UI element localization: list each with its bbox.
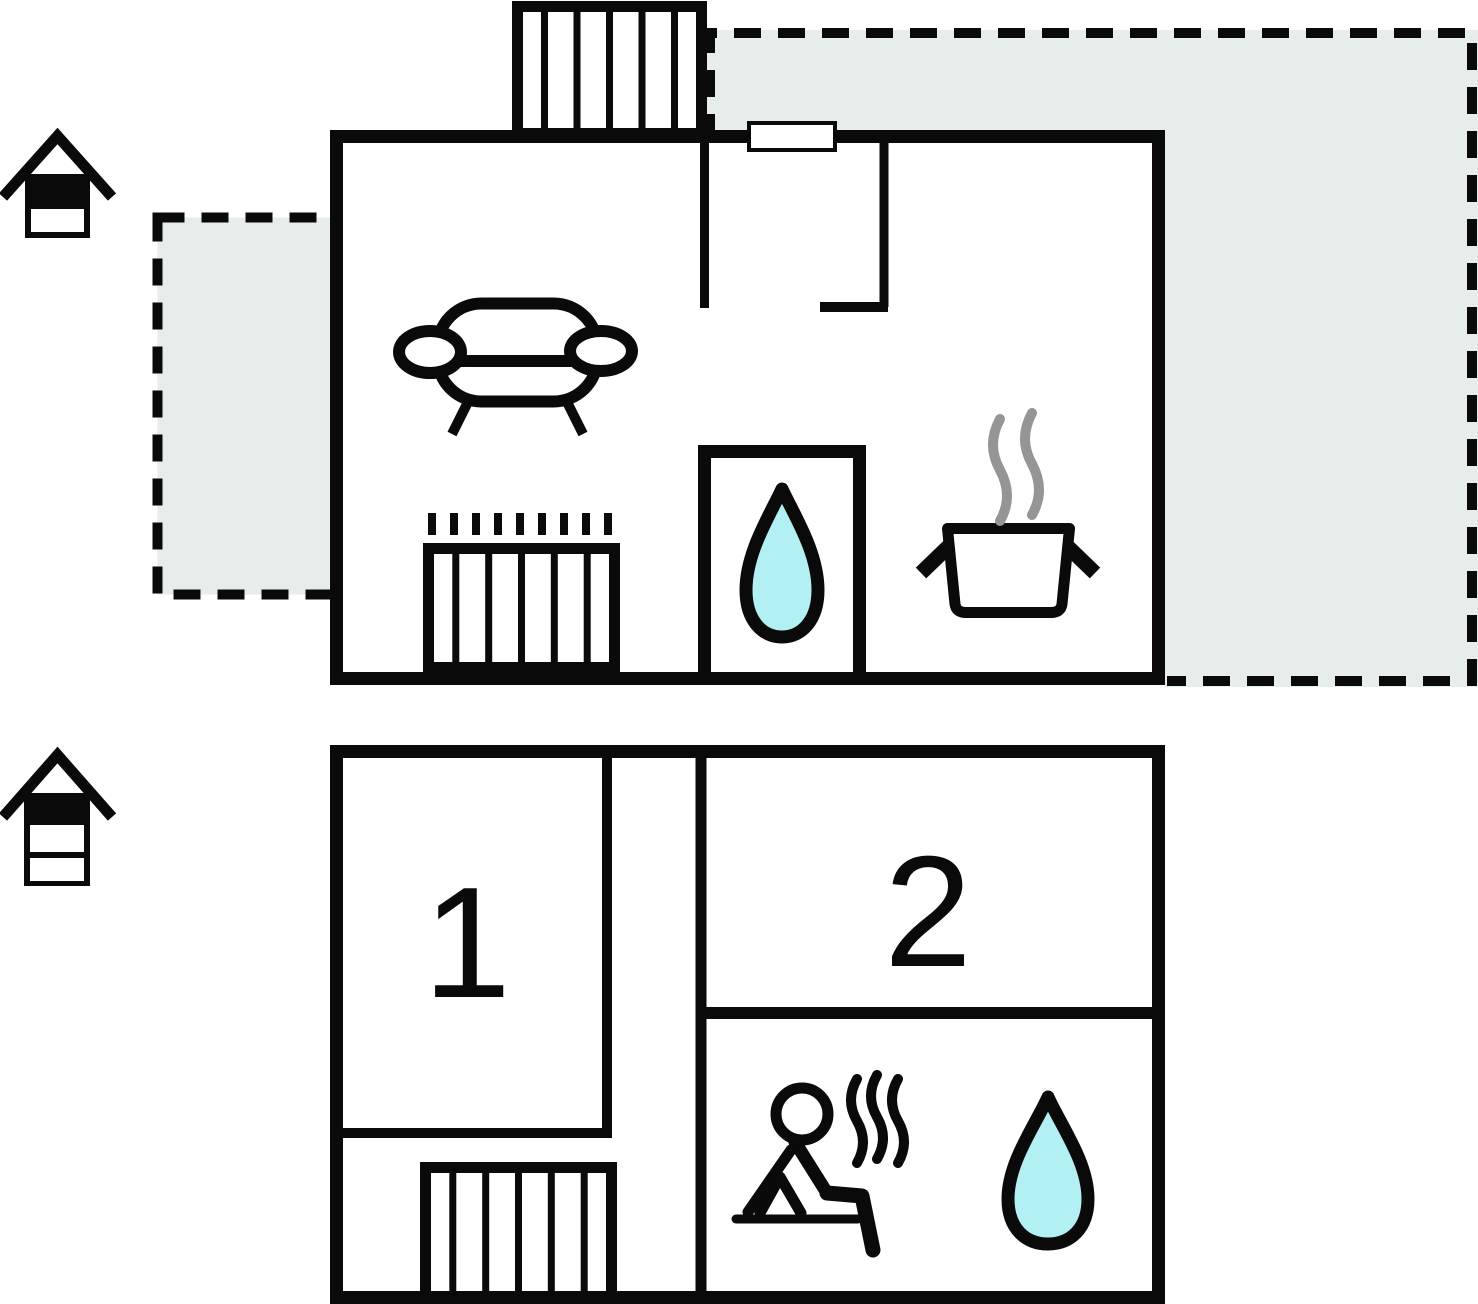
house-body-open-level	[30, 858, 84, 881]
floor-plan-page: 1 2	[0, 0, 1478, 1304]
floor-plan-canvas: 1 2	[0, 0, 1478, 1304]
sofa-armrest	[399, 331, 461, 373]
staircase-icon	[426, 1168, 612, 1297]
upper-floor-plan	[158, 7, 1478, 688]
entrance-door	[749, 123, 835, 150]
terrace-left	[158, 218, 343, 595]
lower-level-indicator-icon	[3, 755, 112, 886]
staircase-icon	[518, 7, 702, 134]
pot-body	[948, 529, 1070, 613]
room1-number: 1	[423, 855, 511, 1031]
upper-level-indicator-icon	[3, 136, 112, 238]
lower-floor-plan: 1 2	[336, 751, 1159, 1298]
house-body-open-level	[30, 825, 84, 852]
person-head	[776, 1088, 828, 1140]
room2-number: 2	[884, 824, 972, 1000]
house-body-open-level	[31, 209, 84, 232]
sofa-armrest	[570, 331, 632, 371]
